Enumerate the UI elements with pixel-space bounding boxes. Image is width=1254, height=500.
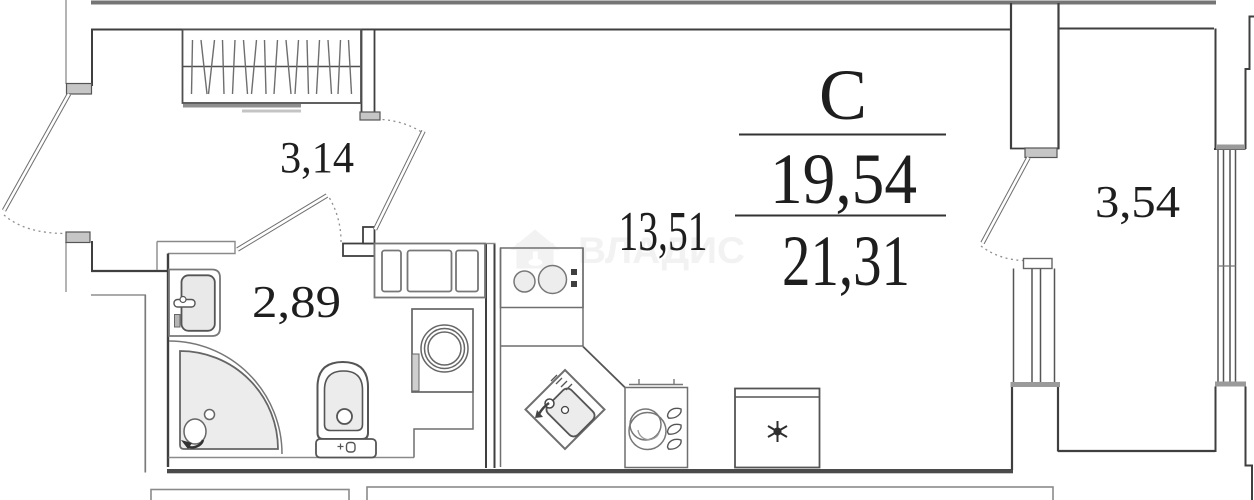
svg-text:2,89: 2,89 <box>252 276 341 327</box>
svg-text:3,14: 3,14 <box>280 133 354 182</box>
svg-text:13,51: 13,51 <box>619 201 708 263</box>
svg-text:С: С <box>819 55 867 135</box>
svg-text:19,54: 19,54 <box>770 139 917 219</box>
svg-text:21,31: 21,31 <box>782 221 910 301</box>
svg-text:3,54: 3,54 <box>1095 177 1180 227</box>
